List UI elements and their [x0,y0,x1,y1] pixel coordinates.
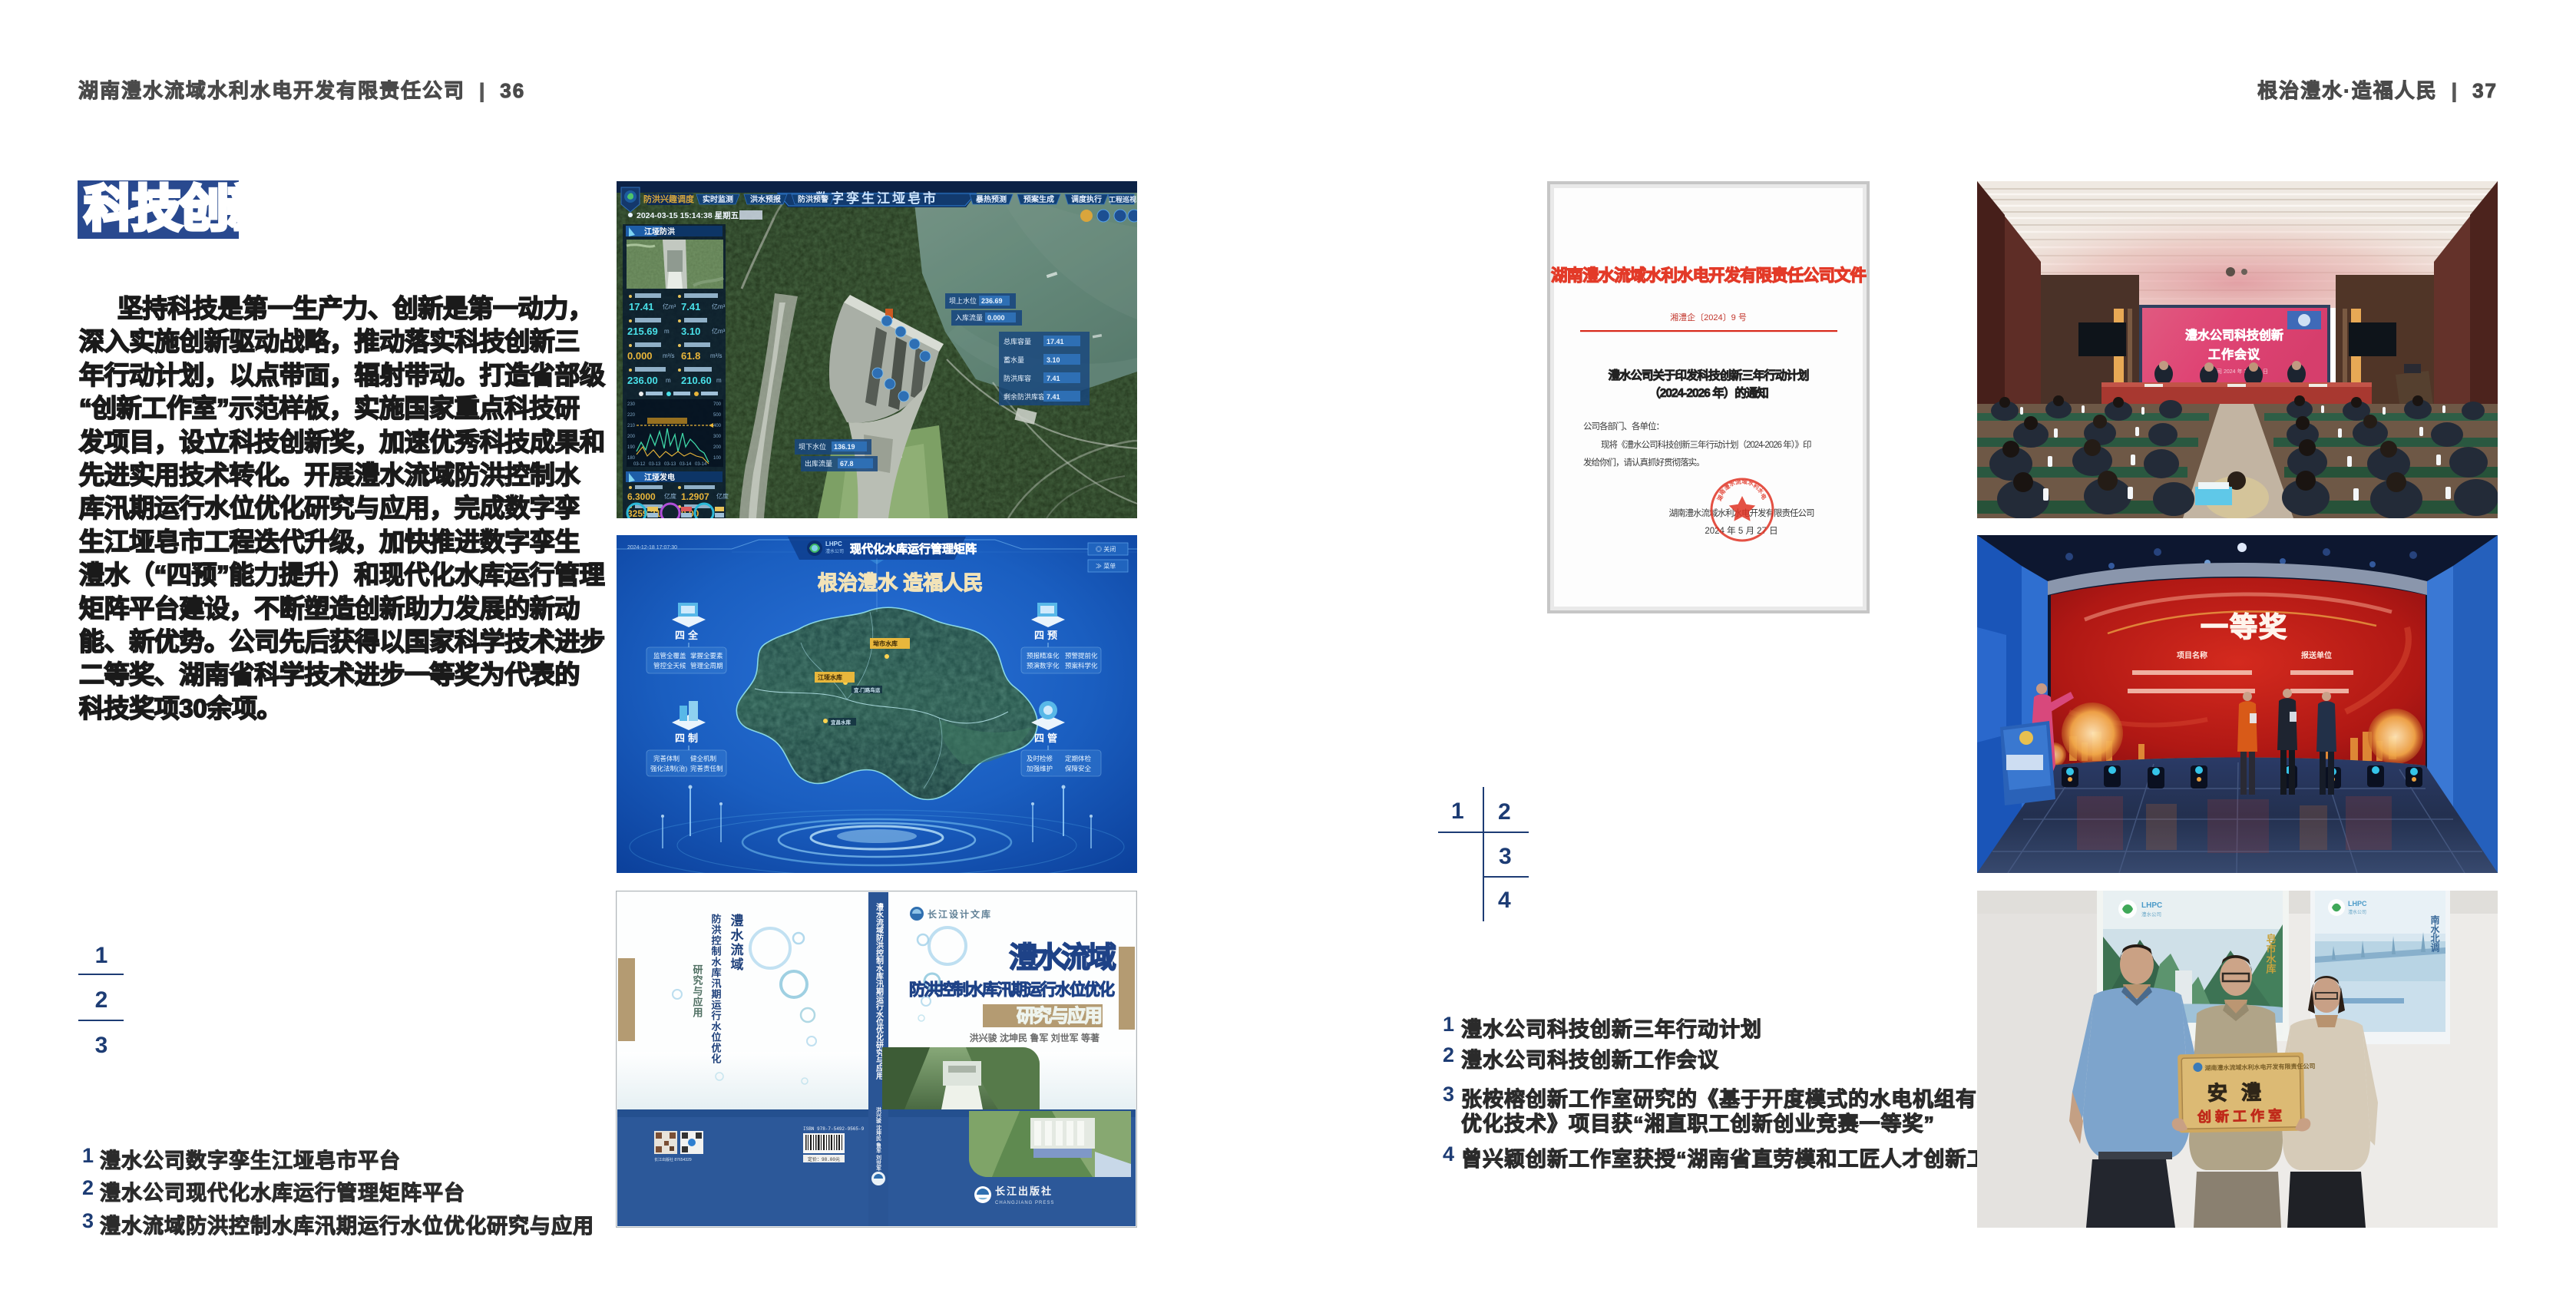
svg-text:安澧: 安澧 [2207,1080,2276,1105]
svg-text:m: m [716,377,722,384]
svg-text:230: 230 [627,402,636,407]
svg-text:蓄水量: 蓄水量 [1004,355,1024,364]
svg-text:0.000: 0.000 [987,314,1005,322]
svg-text:100: 100 [713,456,722,461]
svg-text:管理全周期: 管理全周期 [690,662,723,670]
svg-text:预报精准化: 预报精准化 [1027,652,1060,660]
svg-text:坝上水位: 坝上水位 [949,296,977,305]
svg-text:入库流量: 入库流量 [955,313,983,322]
svg-text:宜.门路鸟运: 宜.门路鸟运 [854,686,881,693]
svg-text:坳市水库: 坳市水库 [873,640,898,647]
svg-text:◎ 关闭: ◎ 关闭 [1096,545,1116,553]
svg-text:四管: 四管 [1034,732,1060,744]
svg-text:61.8: 61.8 [681,350,700,362]
svg-text:136.19: 136.19 [834,443,855,451]
svg-text:1.2907: 1.2907 [681,491,709,502]
svg-text:03-12: 03-12 [633,462,646,467]
svg-text:长江设计文库: 长江设计文库 [928,908,992,920]
svg-text:掌握全要素: 掌握全要素 [690,652,723,660]
svg-text:洪水预报: 洪水预报 [750,194,781,204]
svg-text:澧水公司: 澧水公司 [825,548,844,554]
svg-text:m³/s: m³/s [663,352,675,359]
svg-text:南水北调: 南水北调 [2429,914,2440,953]
svg-text:湖南澧水流域水利水电开发有限责任公司文件: 湖南澧水流域水利水电开发有限责任公司文件 [1551,266,1867,285]
svg-text:项目名称: 项目名称 [2177,650,2207,660]
svg-text:17.41: 17.41 [629,301,654,312]
svg-text:四制: 四制 [675,732,701,744]
svg-text:亿度: 亿度 [664,492,676,500]
svg-text:江垭发电: 江垭发电 [644,472,675,482]
svg-text:m: m [666,377,671,384]
svg-text:0.000: 0.000 [627,350,653,362]
svg-text:3.10: 3.10 [1047,356,1060,364]
svg-text:亿m³: 亿m³ [712,327,726,335]
svg-text:管控全天候: 管控全天候 [653,662,686,670]
svg-text:实时监测: 实时监测 [703,194,733,204]
svg-text:洪兴骏 沈坤民 鲁军 刘世军 等著: 洪兴骏 沈坤民 鲁军 刘世军 等著 [970,1032,1100,1043]
svg-text:完善责任制: 完善责任制 [690,765,723,772]
svg-text:防洪控制水库汛期运行水位优化: 防洪控制水库汛期运行水位优化 [710,913,723,1064]
svg-text:7.41: 7.41 [1047,375,1060,382]
svg-text:03-13: 03-13 [649,462,661,467]
svg-text:江垭防洪: 江垭防洪 [644,226,675,236]
svg-text:190: 190 [627,445,636,450]
svg-text:完善体制: 完善体制 [653,755,680,762]
svg-text:皂市水库: 皂市水库 [2265,933,2277,974]
svg-text:215.69: 215.69 [627,326,658,337]
svg-text:保障安全: 保障安全 [1065,765,1092,772]
svg-text:根治澧水 造福人民: 根治澧水 造福人民 [818,571,983,594]
svg-text:定期体检: 定期体检 [1065,755,1092,762]
svg-text:及时检修: 及时检修 [1027,755,1053,762]
svg-text:创新工作室: 创新工作室 [2197,1107,2286,1125]
svg-text:ISBN 978-7-5492-9565-9: ISBN 978-7-5492-9565-9 [803,1126,865,1132]
svg-text:研究与应用: 研究与应用 [692,964,704,1018]
svg-text:定价：98.00元: 定价：98.00元 [808,1156,840,1162]
svg-text:预警提前化: 预警提前化 [1065,652,1098,660]
svg-text:2024-12-18 17:07:30: 2024-12-18 17:07:30 [627,545,677,551]
svg-text:236.00: 236.00 [627,375,658,386]
svg-text:湘澧企〔2024〕9 号: 湘澧企〔2024〕9 号 [1670,312,1747,322]
svg-text:现将《澧水公司科技创新三年行动计划（2024-2026 年）: 现将《澧水公司科技创新三年行动计划（2024-2026 年）》印 [1601,439,1811,450]
svg-text:200: 200 [713,445,722,450]
svg-text:出库流量: 出库流量 [805,459,832,468]
svg-text:LHPC: LHPC [2348,900,2367,908]
svg-text:CHANGJIANG PRESS: CHANGJIANG PRESS [995,1201,1054,1205]
svg-text:7.41: 7.41 [1047,393,1060,401]
svg-text:澧水流域: 澧水流域 [729,913,744,972]
svg-text:工作会议: 工作会议 [2208,347,2260,362]
svg-text:强化法制(治): 强化法制(治) [650,765,687,772]
svg-text:现代化水库运行管理矩阵: 现代化水库运行管理矩阵 [850,542,977,556]
svg-text:江垭水库: 江垭水库 [818,673,842,681]
svg-text:210.60: 210.60 [681,375,712,386]
svg-text:澧水公司: 澧水公司 [2348,909,2366,915]
svg-text:监管全覆盖: 监管全覆盖 [653,652,686,660]
svg-text:澧水公司关于印发科技创新三年行动计划: 澧水公司关于印发科技创新三年行动计划 [1608,368,1809,382]
svg-text:总库容量: 总库容量 [1004,337,1031,346]
svg-text:亿m³: 亿m³ [663,303,676,310]
svg-text:m: m [664,328,670,335]
svg-text:加强维护: 加强维护 [1027,765,1053,772]
svg-text:17.41: 17.41 [1047,338,1064,346]
svg-text:亿度: 亿度 [716,492,729,500]
svg-text:暴热预测: 暴热预测 [975,194,1007,204]
svg-text:防洪库容: 防洪库容 [1004,374,1031,382]
svg-text:坝下水位: 坝下水位 [799,442,826,451]
svg-text:发给你们，请认真抓好贯彻落实。: 发给你们，请认真抓好贯彻落实。 [1583,457,1705,468]
svg-text:2024-03-15 15:14:38 星期五: 2024-03-15 15:14:38 星期五 [637,210,739,220]
svg-text:67.8: 67.8 [840,460,854,468]
svg-text:03-14: 03-14 [695,462,707,467]
svg-text:236.69: 236.69 [981,297,1003,305]
svg-text:研究与应用: 研究与应用 [1017,1005,1101,1027]
svg-text:防洪预警: 防洪预警 [798,194,828,204]
svg-text:工程巡视: 工程巡视 [1109,195,1136,203]
svg-text:预演数字化: 预演数字化 [1027,662,1060,670]
svg-text:一等奖: 一等奖 [2201,611,2288,643]
svg-text:亿m³: 亿m³ [712,303,726,310]
svg-text:长江出版社: 长江出版社 [995,1185,1053,1197]
svg-text:7.41: 7.41 [681,301,700,312]
svg-text:长江出版社 87654329: 长江出版社 87654329 [654,1157,692,1162]
svg-text:公司各部门、各单位：: 公司各部门、各单位： [1583,421,1664,431]
svg-text:澧水流域: 澧水流域 [1009,942,1116,974]
svg-text:调度执行: 调度执行 [1071,194,1102,204]
svg-text:澧水公司科技创新: 澧水公司科技创新 [2185,328,2283,342]
svg-text:（2024-2026 年）的通知: （2024-2026 年）的通知 [1648,385,1768,400]
svg-text:LHPC: LHPC [825,541,842,547]
svg-text:m³/s: m³/s [710,352,723,359]
svg-text:≫ 菜单: ≫ 菜单 [1096,562,1116,570]
svg-text:400: 400 [713,424,722,428]
svg-text:500: 500 [713,413,722,418]
svg-text:健全机制: 健全机制 [690,755,716,762]
svg-text:四全: 四全 [675,630,701,641]
svg-text:03-14: 03-14 [680,462,692,467]
svg-text:210: 210 [627,424,636,428]
svg-text:预案科学化: 预案科学化 [1065,662,1098,670]
svg-text:预案生成: 预案生成 [1023,194,1054,204]
svg-text:防洪兴趣调度: 防洪兴趣调度 [643,193,695,204]
svg-text:剩余防洪库容: 剩余防洪库容 [1004,392,1045,401]
svg-text:200: 200 [627,435,636,439]
svg-text:220: 220 [627,413,636,418]
svg-text:防洪控制水库汛期运行水位优化: 防洪控制水库汛期运行水位优化 [909,980,1115,999]
svg-text:6.3000: 6.3000 [627,491,656,502]
svg-text:700: 700 [713,402,722,407]
svg-text:四预: 四预 [1034,630,1060,641]
svg-text:3.10: 3.10 [681,326,700,337]
svg-text:LHPC: LHPC [2141,901,2162,910]
svg-text:报送单位: 报送单位 [2301,650,2332,660]
svg-text:宜昌水库: 宜昌水库 [831,719,852,726]
svg-text:300: 300 [713,435,722,439]
svg-text:03-13: 03-13 [664,462,676,467]
svg-text:数字孪生江垭皂市: 数字孪生江垭皂市 [815,190,938,206]
svg-text:180: 180 [627,456,636,461]
svg-text:澧水公司: 澧水公司 [2141,911,2161,918]
